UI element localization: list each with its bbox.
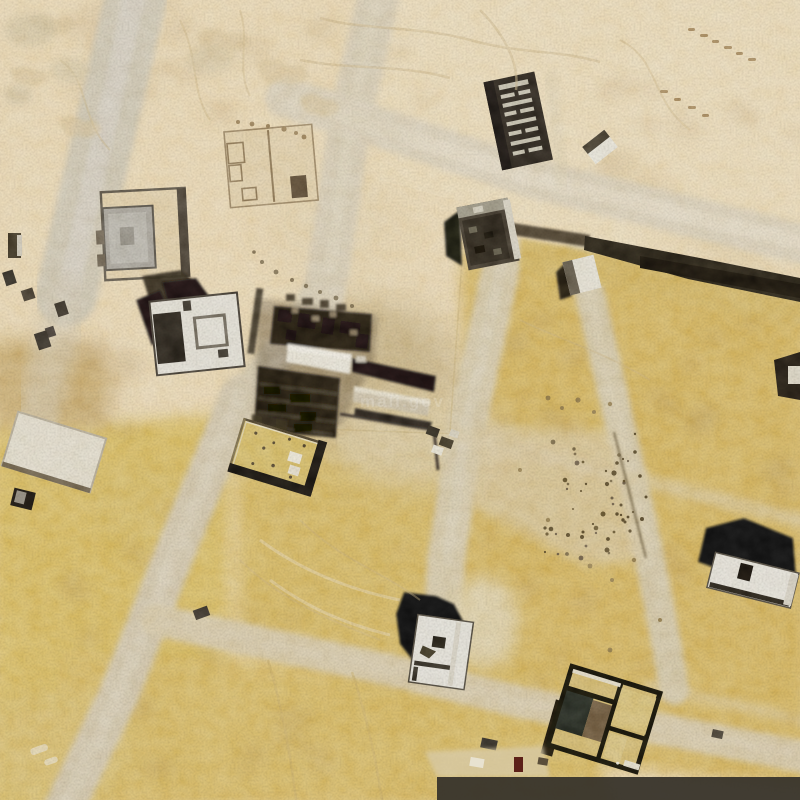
svg-text:mali.gov: mali.gov — [360, 392, 445, 411]
